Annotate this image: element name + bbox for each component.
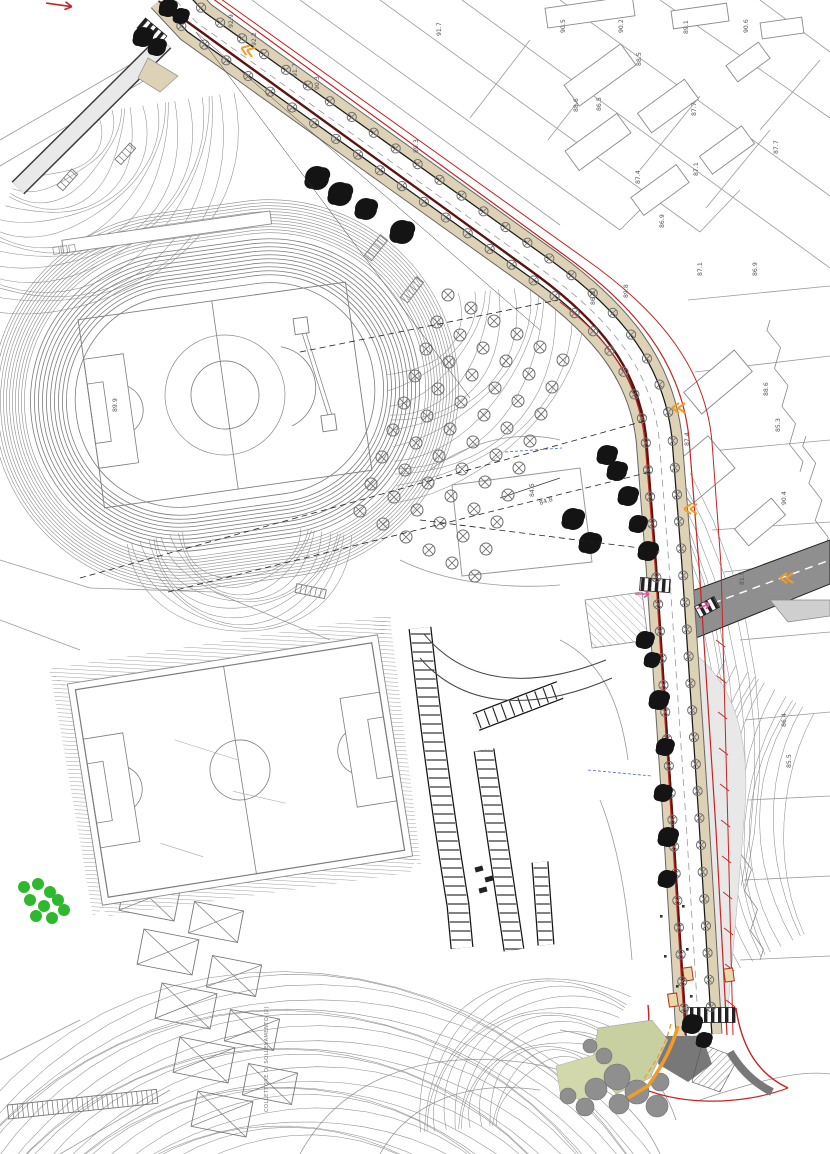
spot-elevation-label: 88.5 — [636, 52, 643, 66]
proposed-tree-symbol — [512, 395, 524, 407]
existing-tree — [618, 486, 640, 506]
shrub — [30, 910, 42, 922]
proposed-tree-symbol — [535, 408, 547, 420]
planter — [668, 993, 679, 1007]
spot-elevation-label: 85.3 — [775, 418, 782, 432]
spot-elevation-label: 89.8 — [623, 284, 630, 298]
athletics-stadium — [0, 175, 483, 614]
proposed-tree-symbol — [500, 355, 512, 367]
existing-tree — [304, 166, 330, 190]
proposed-tree-symbol — [454, 329, 466, 341]
proposed-tree-symbol — [489, 382, 501, 394]
existing-tree — [354, 198, 378, 220]
tree-canopy — [604, 1064, 630, 1090]
tree-canopy — [583, 1039, 597, 1053]
football-field — [47, 614, 433, 924]
proposed-tree-symbol — [410, 437, 422, 449]
spot-elevation-label: 90.4 — [781, 491, 788, 505]
tree-canopy — [585, 1078, 607, 1100]
spot-elevation-label: 87.4 — [635, 170, 642, 184]
proposed-tree-symbol — [513, 462, 525, 474]
braced-structure — [206, 956, 261, 997]
tree-canopy — [560, 1088, 576, 1104]
spot-elevation-label: 88.6 — [573, 98, 580, 112]
proposed-tree-symbol — [511, 328, 523, 340]
shrub — [46, 912, 58, 924]
spot-elevation-label: 87.1 — [697, 262, 704, 276]
proposed-tree-symbol — [423, 544, 435, 556]
proposed-tree-symbol — [431, 316, 443, 328]
football-pitch — [47, 614, 433, 924]
proposed-tree-symbol — [465, 302, 477, 314]
south-intersection — [556, 967, 772, 1117]
tree-canopy — [576, 1098, 594, 1116]
spot-elevation-label: 87.1 — [693, 162, 700, 176]
proposed-tree-symbol — [478, 409, 490, 421]
braced-structure — [155, 983, 217, 1029]
proposed-tree-symbol — [477, 342, 489, 354]
braced-structure — [137, 929, 199, 975]
proposed-tree-symbol — [534, 341, 546, 353]
spot-elevation-label: 86.8 — [590, 291, 597, 305]
athletics-track — [0, 175, 483, 614]
spot-elevation-label: 92.9 — [228, 14, 235, 28]
spot-elevation-label: 85.5 — [786, 754, 793, 768]
spot-elevation-label: 90.6 — [743, 19, 750, 33]
spot-elevation-label: 87.7 — [691, 102, 698, 116]
spot-elevation-label: 86.9 — [752, 262, 759, 276]
parked-car — [478, 887, 487, 894]
stairs-symbol — [7, 1089, 158, 1119]
parked-car — [474, 866, 483, 873]
proposed-tree-symbol — [546, 381, 558, 393]
tree-canopy — [609, 1094, 629, 1114]
proposed-tree-symbol — [488, 315, 500, 327]
spot-elevation-label: 91.7 — [292, 63, 299, 77]
proposed-tree-symbol — [524, 435, 536, 447]
proposed-tree-symbol — [442, 289, 454, 301]
shrub — [58, 904, 70, 916]
spot-elevation-label: 89.1 — [683, 20, 690, 34]
proposed-tree-symbol — [432, 383, 444, 395]
spot-elevation-label: 86.9 — [659, 214, 666, 228]
spot-elevation-label: 84.5 — [529, 483, 536, 497]
spot-elevation-label: 89.9 — [112, 398, 119, 412]
spot-elevation-label: 86.4 — [781, 713, 788, 727]
shrub — [52, 894, 64, 906]
spot-elevation-label: 87.4 — [684, 432, 691, 446]
proposed-tree-symbol — [557, 354, 569, 366]
spot-elevation-label: 81.5 — [739, 571, 746, 585]
shrub — [18, 881, 30, 893]
proposed-tree-symbol — [455, 396, 467, 408]
secondary-roads — [18, 42, 830, 648]
shrub — [38, 900, 50, 912]
spot-elevation-label: 88.6 — [763, 382, 770, 396]
spot-elevation-label: 91.7 — [436, 22, 443, 36]
braced-structure — [188, 902, 243, 943]
proposed-tree-symbol — [501, 422, 513, 434]
street-note-label: COLLETTORE DI SOLLEVAMENTO (2) — [264, 1006, 270, 1112]
spot-elevation-label: 86.5 — [596, 97, 603, 111]
proposed-tree-symbol — [523, 368, 535, 380]
proposed-tree-symbol — [446, 557, 458, 569]
parked-car — [484, 876, 493, 883]
proposed-tree-symbol — [354, 505, 366, 517]
site-plan-map: Topographic CAD site plan — road redevel… — [0, 0, 830, 1154]
existing-tree — [327, 182, 353, 206]
red-north-arrow — [46, 0, 73, 11]
shrub — [24, 894, 36, 906]
tree-canopy — [596, 1048, 612, 1064]
spot-elevation-label: 90.3 — [314, 76, 321, 90]
shrub — [32, 878, 44, 890]
tree-canopy — [646, 1095, 668, 1117]
existing-tree — [389, 220, 415, 244]
proposed-tree-symbol — [411, 504, 423, 516]
spot-elevation-label: 90.5 — [560, 19, 567, 33]
planter — [724, 968, 735, 982]
spot-elevation-label: 87.7 — [773, 140, 780, 154]
proposed-tree-symbol — [466, 369, 478, 381]
spot-elevation-label: 89.3 — [413, 139, 420, 153]
parking-lot — [420, 628, 612, 950]
spot-elevation-label: 92.2 — [251, 32, 258, 46]
spot-elevation-label: 90.2 — [618, 19, 625, 33]
proposed-tree-symbol — [398, 397, 410, 409]
braced-structure — [242, 1064, 297, 1105]
